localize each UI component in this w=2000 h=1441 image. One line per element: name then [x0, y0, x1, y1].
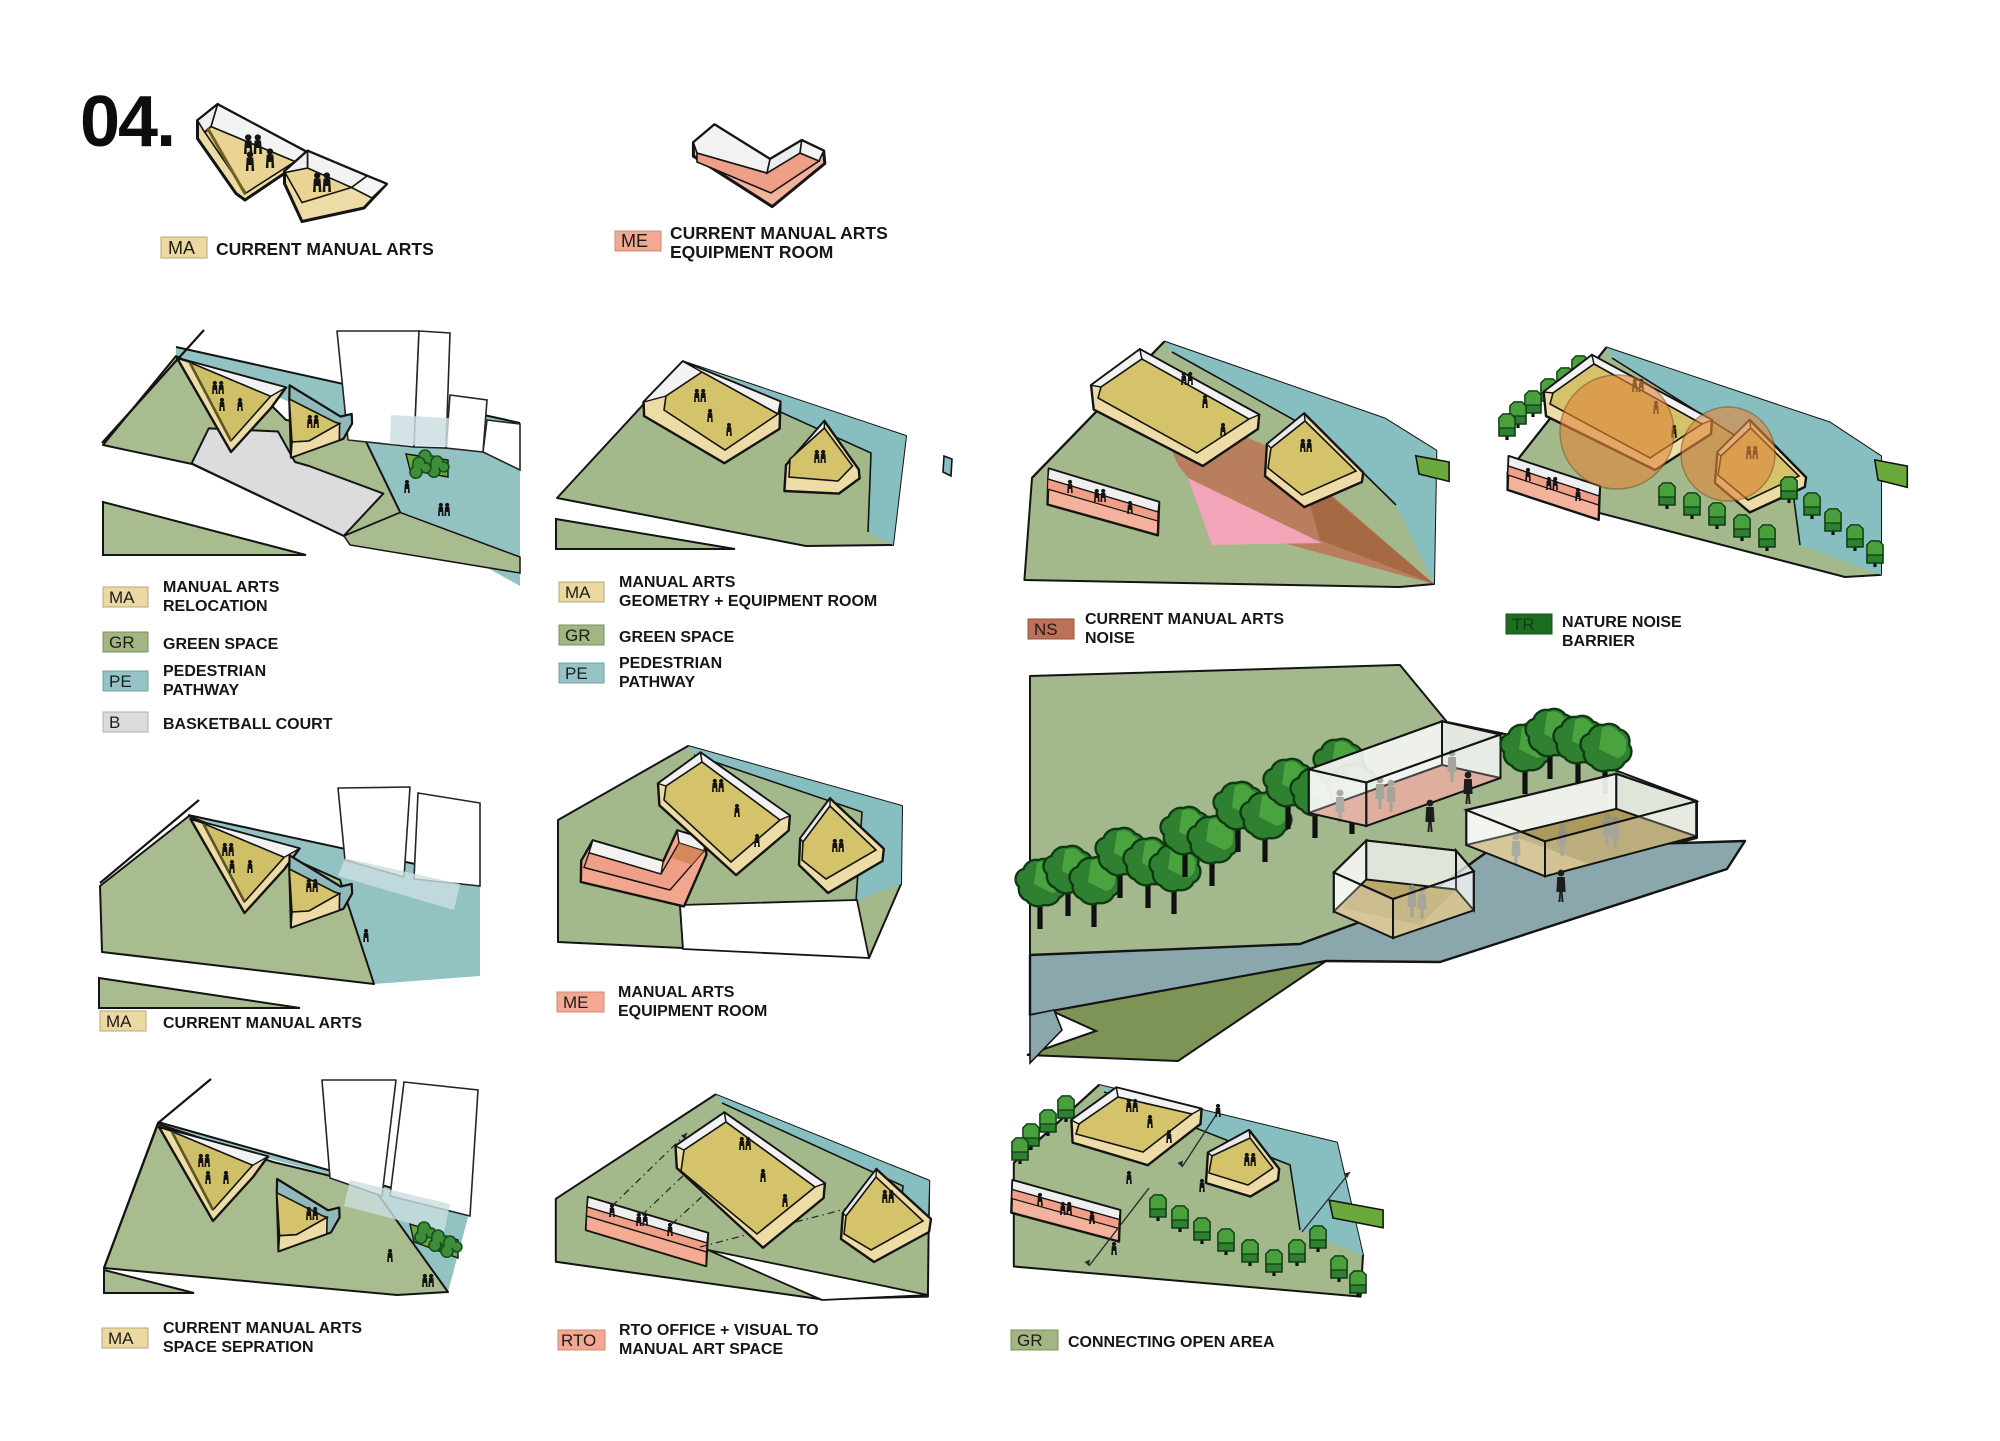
svg-text:RELOCATION: RELOCATION — [163, 598, 268, 615]
svg-text:BARRIER: BARRIER — [1562, 633, 1635, 650]
svg-text:MANUAL ARTS: MANUAL ARTS — [163, 579, 280, 596]
svg-text:CURRENT MANUAL ARTS: CURRENT MANUAL ARTS — [163, 1015, 362, 1032]
svg-text:CURRENT MANUAL ARTS: CURRENT MANUAL ARTS — [216, 239, 434, 259]
svg-text:BASKETBALL COURT: BASKETBALL COURT — [163, 716, 333, 733]
svg-text:EQUIPMENT ROOM: EQUIPMENT ROOM — [618, 1003, 767, 1020]
svg-text:PEDESTRIAN: PEDESTRIAN — [619, 655, 722, 672]
svg-text:PE: PE — [109, 672, 132, 691]
svg-text:GREEN SPACE: GREEN SPACE — [619, 629, 735, 646]
svg-text:MA: MA — [106, 1012, 132, 1031]
svg-text:MA: MA — [109, 588, 135, 607]
svg-text:ME: ME — [621, 231, 648, 251]
svg-text:PEDESTRIAN: PEDESTRIAN — [163, 663, 266, 680]
svg-text:PATHWAY: PATHWAY — [619, 674, 695, 691]
svg-text:CURRENT MANUAL ARTS: CURRENT MANUAL ARTS — [670, 223, 888, 243]
svg-text:MA: MA — [565, 583, 591, 602]
svg-text:NS: NS — [1034, 620, 1058, 639]
svg-text:SPACE SEPRATION: SPACE SEPRATION — [163, 1339, 314, 1356]
svg-text:MANUAL ARTS: MANUAL ARTS — [619, 574, 736, 591]
svg-text:MANUAL ARTS: MANUAL ARTS — [618, 984, 735, 1001]
svg-text:GR: GR — [1017, 1331, 1043, 1350]
svg-text:CURRENT MANUAL ARTS: CURRENT MANUAL ARTS — [163, 1320, 362, 1337]
svg-text:GEOMETRY + EQUIPMENT ROOM: GEOMETRY + EQUIPMENT ROOM — [619, 593, 877, 610]
svg-text:PE: PE — [565, 664, 588, 683]
svg-text:TR: TR — [1512, 615, 1535, 634]
svg-text:CONNECTING OPEN AREA: CONNECTING OPEN AREA — [1068, 1334, 1275, 1351]
svg-text:GR: GR — [565, 626, 591, 645]
svg-text:B: B — [109, 713, 120, 732]
svg-text:MANUAL ART SPACE: MANUAL ART SPACE — [619, 1341, 783, 1358]
svg-text:EQUIPMENT ROOM: EQUIPMENT ROOM — [670, 242, 833, 262]
svg-text:PATHWAY: PATHWAY — [163, 682, 239, 699]
svg-text:NATURE NOISE: NATURE NOISE — [1562, 614, 1682, 631]
svg-text:GREEN SPACE: GREEN SPACE — [163, 636, 279, 653]
svg-text:RTO OFFICE + VISUAL TO: RTO OFFICE + VISUAL TO — [619, 1322, 819, 1339]
svg-text:RTO: RTO — [561, 1331, 596, 1350]
svg-text:CURRENT MANUAL ARTS: CURRENT MANUAL ARTS — [1085, 611, 1284, 628]
svg-text:MA: MA — [108, 1329, 134, 1348]
svg-text:ME: ME — [563, 993, 589, 1012]
svg-text:04.: 04. — [80, 82, 174, 162]
svg-text:MA: MA — [168, 238, 195, 258]
svg-text:NOISE: NOISE — [1085, 630, 1135, 647]
svg-text:GR: GR — [109, 633, 135, 652]
